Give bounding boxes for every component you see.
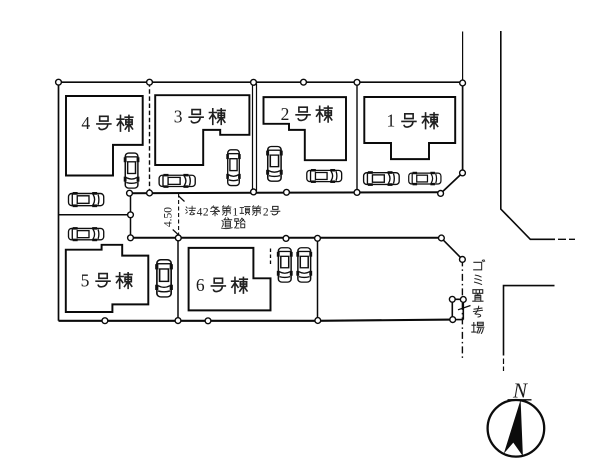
svg-text:1: 1 xyxy=(232,207,238,219)
svg-text:2: 2 xyxy=(263,207,269,219)
svg-text:2: 2 xyxy=(203,207,209,219)
svg-text:4: 4 xyxy=(81,113,90,133)
svg-text:4.50: 4.50 xyxy=(163,207,175,227)
svg-text:3: 3 xyxy=(174,107,183,127)
svg-text:4: 4 xyxy=(197,207,203,219)
svg-text:1: 1 xyxy=(387,111,396,131)
svg-text:5: 5 xyxy=(81,271,90,291)
svg-text:2: 2 xyxy=(281,104,290,124)
svg-text:6: 6 xyxy=(196,275,205,295)
